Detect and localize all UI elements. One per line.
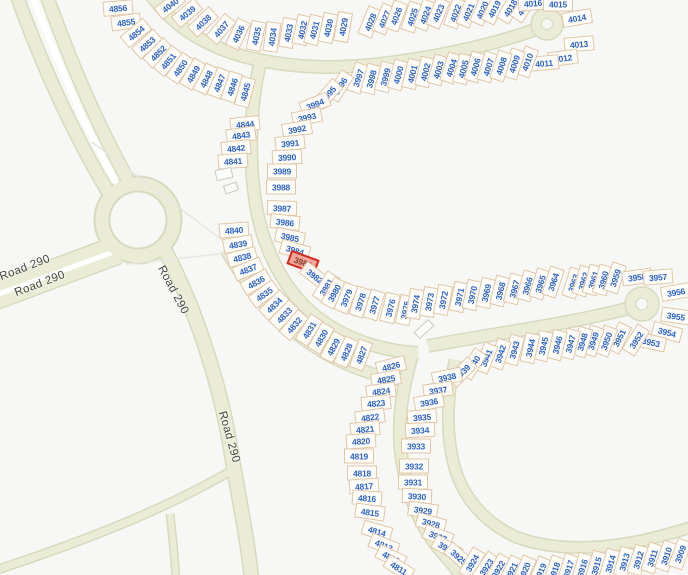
parcel[interactable]: 4820 [346,432,377,449]
road-label: Road 290 [216,410,242,464]
parcel[interactable]: 3932 [399,459,429,474]
map-canvas[interactable]: 4856485548544853485248514850484948484847… [0,0,688,575]
parcel[interactable]: 4015 [543,0,573,12]
building [215,167,234,181]
parcel[interactable]: 3956 [660,282,688,302]
parcel[interactable]: 3988 [266,180,296,195]
parcel-layer: 4856485548544853485248514850484948484847… [0,0,688,575]
parcel[interactable]: 4819 [344,449,374,464]
parcel[interactable]: 3957 [642,268,673,286]
parcel[interactable]: 3933 [401,439,431,454]
parcel[interactable]: 4841 [218,152,249,169]
building [414,319,435,339]
road-label: Road 290 [155,264,191,316]
parcel[interactable]: 3989 [267,164,297,179]
parcel[interactable]: 3934 [405,422,436,439]
building [223,182,239,195]
parcel[interactable]: 4815 [354,502,386,521]
